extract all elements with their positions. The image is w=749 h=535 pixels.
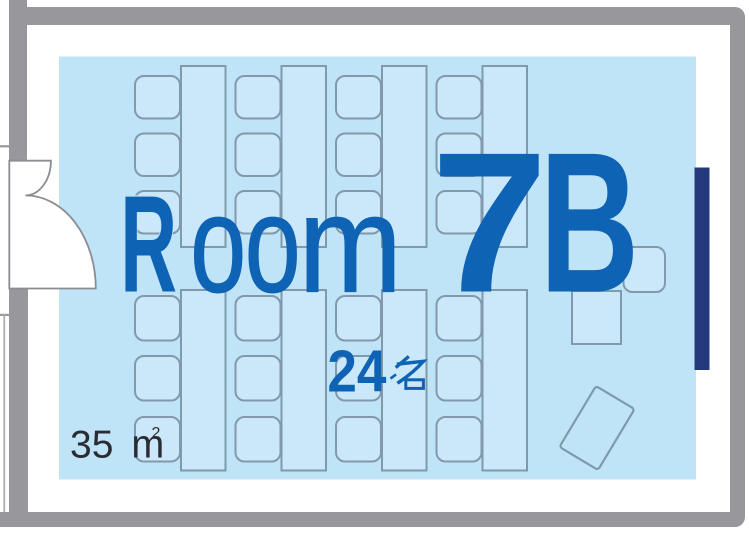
- svg-text:m: m: [299, 166, 402, 321]
- svg-text:24: 24: [327, 338, 386, 404]
- svg-text:2: 2: [152, 425, 161, 442]
- svg-text:o: o: [245, 167, 301, 321]
- svg-text:7: 7: [431, 111, 548, 334]
- svg-text:B: B: [540, 111, 640, 334]
- svg-text:35: 35: [70, 424, 113, 467]
- svg-text:R: R: [120, 166, 177, 321]
- svg-text:o: o: [190, 167, 246, 321]
